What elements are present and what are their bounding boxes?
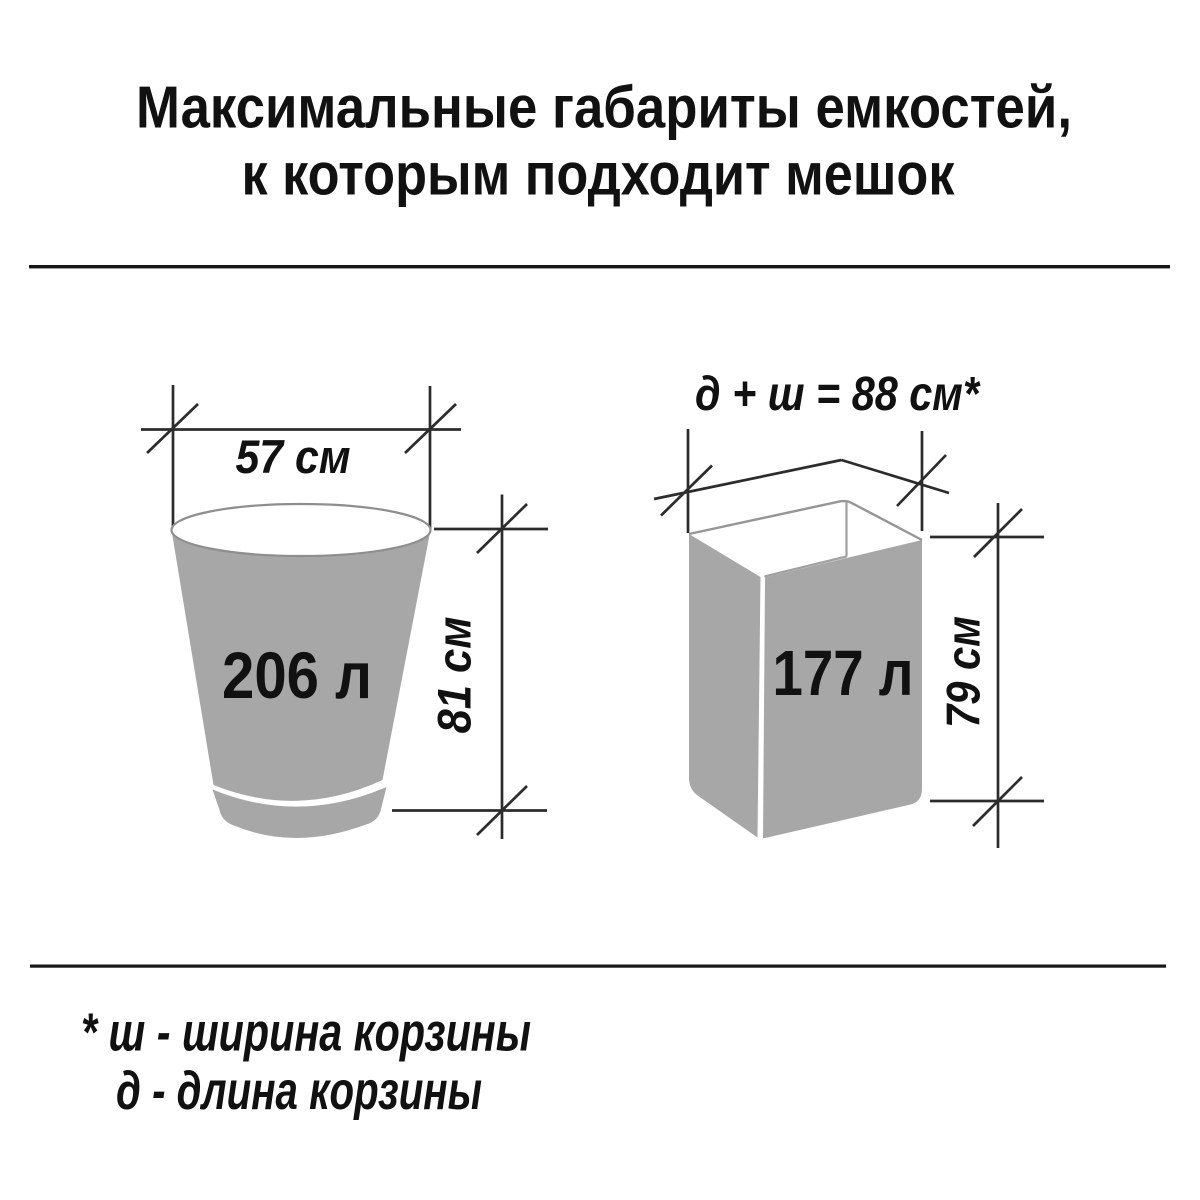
svg-text:79 см: 79 см — [937, 616, 990, 728]
svg-text:д + ш = 88 см*: д + ш = 88 см* — [695, 368, 981, 421]
svg-text:к которым подходит мешок: к которым подходит мешок — [242, 142, 955, 208]
svg-text:д - длина корзины: д - длина корзины — [116, 1061, 482, 1121]
svg-text:Максимальные габариты емкостей: Максимальные габариты емкостей, — [136, 75, 1072, 141]
svg-text:* ш - ширина корзины: * ш - ширина корзины — [81, 1003, 531, 1063]
svg-text:206 л: 206 л — [222, 638, 372, 712]
svg-text:177 л: 177 л — [773, 637, 914, 709]
svg-text:57 см: 57 см — [236, 430, 351, 483]
svg-text:81 см: 81 см — [428, 617, 481, 734]
